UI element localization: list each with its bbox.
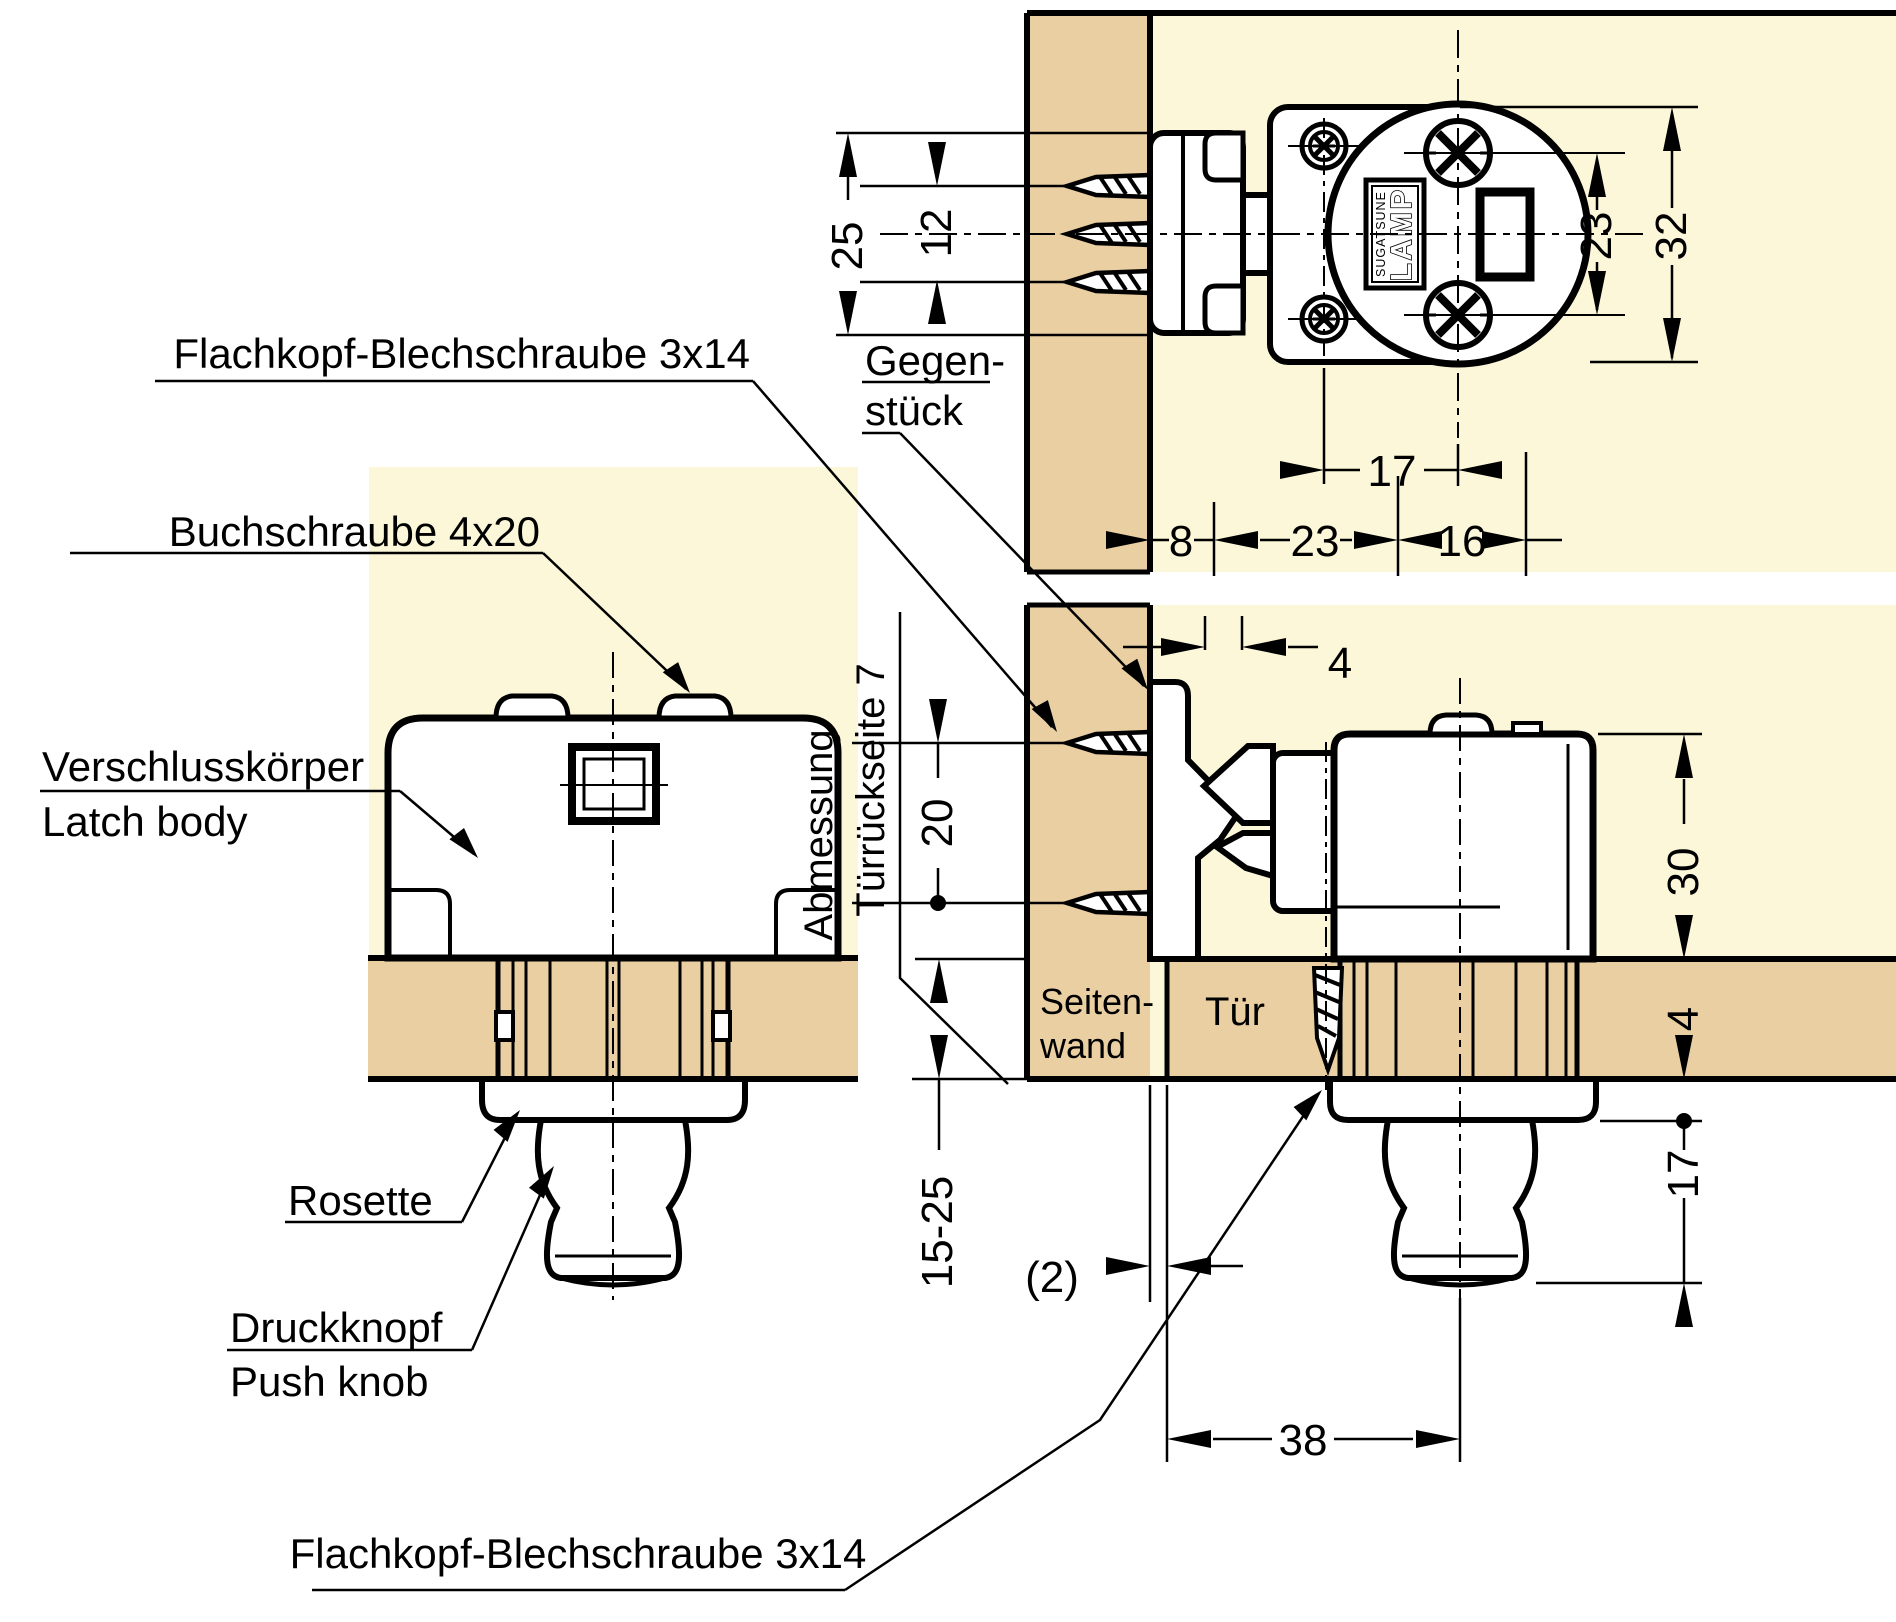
label-stueck: stück: [865, 387, 964, 434]
dim-20: 20: [913, 799, 962, 848]
dim-8: 8: [1169, 517, 1193, 566]
label-rosette: Rosette: [288, 1177, 433, 1224]
label-tuer: Tür: [1205, 990, 1265, 1034]
dim-12: 12: [912, 209, 961, 258]
label-push-knob: Push knob: [230, 1358, 428, 1405]
label-gegen: Gegen-: [865, 337, 1005, 384]
dim-2: (2): [1025, 1253, 1079, 1302]
dim-16: 16: [1438, 517, 1487, 566]
bush-screw-dome-right: [659, 696, 731, 718]
label-buchschraube: Buchschraube 4x20: [169, 508, 540, 555]
label-seiten: Seiten-: [1040, 981, 1154, 1022]
dim-4-door: 4: [1659, 1007, 1708, 1031]
dim-23-horizontal: 23: [1291, 517, 1340, 566]
rosette-side: [1330, 1079, 1596, 1120]
dim-17-knob: 17: [1659, 1150, 1708, 1199]
technical-drawing-page: LAMP SUGATSUNE: [0, 0, 1896, 1622]
label-tuerrueckseite: Türrückseite 7: [849, 663, 893, 916]
latch-technical-drawing: LAMP SUGATSUNE: [0, 0, 1896, 1622]
dim-32: 32: [1647, 212, 1696, 261]
dim-17: 17: [1368, 447, 1417, 496]
label-flachkopf-bottom: Flachkopf-Blechschraube 3x14: [290, 1530, 867, 1577]
latch-side-body: [1334, 734, 1593, 959]
label-flachkopf-top: Flachkopf-Blechschraube 3x14: [173, 330, 750, 377]
label-verschlusskoerper: Verschlusskörper: [42, 743, 364, 790]
dim-4-keeper: 4: [1328, 639, 1352, 688]
latch-tab-right: [713, 1012, 730, 1040]
bush-screw-dome-left: [496, 696, 568, 718]
label-latch-body: Latch body: [42, 798, 248, 845]
label-wand: wand: [1039, 1025, 1126, 1066]
dim-23-vertical: 23: [1572, 212, 1621, 261]
dim-30: 30: [1659, 848, 1708, 897]
dim-25: 25: [823, 222, 872, 271]
latch-tab-left: [496, 1012, 513, 1040]
label-druckknopf: Druckknopf: [230, 1304, 443, 1351]
dim-38: 38: [1279, 1416, 1328, 1465]
dim-15-25: 15-25: [913, 1176, 962, 1289]
label-abmessung: Abmessung: [797, 729, 841, 940]
